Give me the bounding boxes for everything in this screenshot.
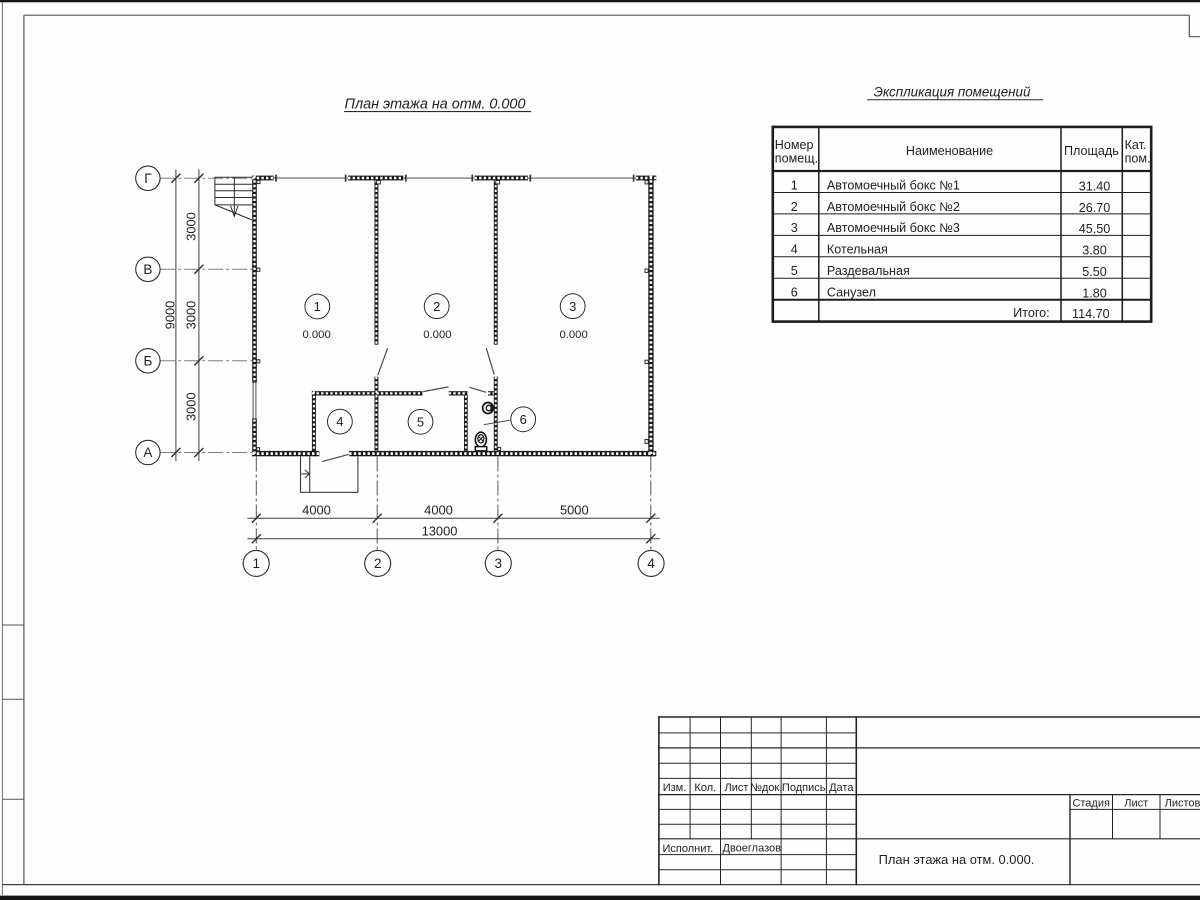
svg-text:Автомоечный бокс №3: Автомоечный бокс №3 <box>827 221 960 235</box>
svg-text:Г: Г <box>144 171 152 186</box>
svg-text:Площадь: Площадь <box>1064 144 1119 158</box>
svg-text:Стадия: Стадия <box>1072 797 1110 809</box>
svg-text:5.50: 5.50 <box>1082 265 1107 279</box>
svg-text:5000: 5000 <box>560 503 589 518</box>
svg-text:4: 4 <box>336 414 343 429</box>
svg-text:помещ.: помещ. <box>775 152 818 166</box>
svg-text:114.70: 114.70 <box>1072 307 1110 321</box>
svg-text:4: 4 <box>791 243 798 257</box>
svg-text:Автомоечный бокс №1: Автомоечный бокс №1 <box>827 178 960 192</box>
svg-text:5: 5 <box>417 414 424 429</box>
svg-text:2: 2 <box>791 200 798 214</box>
svg-text:3000: 3000 <box>183 301 198 330</box>
svg-text:Кол.: Кол. <box>694 782 716 794</box>
svg-text:Раздевальная: Раздевальная <box>827 264 910 278</box>
svg-text:3000: 3000 <box>183 212 198 241</box>
svg-text:0.000: 0.000 <box>559 329 587 341</box>
svg-text:Номер: Номер <box>775 138 814 152</box>
svg-text:Итого:: Итого: <box>1013 306 1050 320</box>
svg-text:9000: 9000 <box>163 301 178 330</box>
svg-text:Лист: Лист <box>725 782 749 794</box>
svg-text:26.70: 26.70 <box>1079 201 1111 215</box>
svg-text:Подпись: Подпись <box>782 782 826 794</box>
svg-text:5: 5 <box>791 264 798 278</box>
svg-text:План этажа на отм. 0.000: План этажа на отм. 0.000 <box>345 97 526 113</box>
svg-text:3.80: 3.80 <box>1082 244 1107 258</box>
svg-text:45.50: 45.50 <box>1079 222 1111 236</box>
svg-text:3000: 3000 <box>183 392 198 421</box>
svg-text:0.000: 0.000 <box>423 329 451 341</box>
svg-text:В: В <box>143 262 152 277</box>
svg-text:2: 2 <box>433 299 440 314</box>
svg-text:31.40: 31.40 <box>1079 179 1111 193</box>
svg-text:Исполнит.: Исполнит. <box>663 843 714 855</box>
svg-text:4000: 4000 <box>424 503 453 518</box>
svg-text:1: 1 <box>314 299 321 314</box>
svg-text:3: 3 <box>569 299 576 314</box>
svg-text:3: 3 <box>791 221 798 235</box>
svg-text:Изм.: Изм. <box>663 782 687 794</box>
svg-text:Дата: Дата <box>829 782 854 794</box>
svg-text:План этажа на отм. 0.000.: План этажа на отм. 0.000. <box>879 852 1035 867</box>
svg-text:пом.: пом. <box>1125 152 1151 166</box>
svg-text:13000: 13000 <box>422 523 458 538</box>
svg-text:Санузел: Санузел <box>827 286 876 300</box>
svg-text:Кат.: Кат. <box>1125 138 1147 152</box>
svg-text:4: 4 <box>647 556 655 571</box>
svg-text:Экспликация помещений: Экспликация помещений <box>874 85 1031 100</box>
svg-text:Лист: Лист <box>1124 797 1148 809</box>
svg-text:0.000: 0.000 <box>302 329 330 341</box>
svg-text:Б: Б <box>143 354 152 369</box>
svg-text:А: А <box>143 445 152 460</box>
svg-text:6: 6 <box>520 412 527 427</box>
svg-text:4000: 4000 <box>302 503 331 518</box>
svg-text:Двоеглазов: Двоеглазов <box>723 842 782 854</box>
svg-text:Листов: Листов <box>1165 797 1200 809</box>
svg-text:1.80: 1.80 <box>1082 287 1107 301</box>
svg-text:1: 1 <box>252 556 260 571</box>
svg-text:Автомоечный бокс №2: Автомоечный бокс №2 <box>827 200 960 214</box>
svg-text:2: 2 <box>374 556 382 571</box>
svg-text:№док.: №док. <box>750 782 782 794</box>
svg-text:3: 3 <box>495 556 503 571</box>
svg-text:Котельная: Котельная <box>827 243 888 257</box>
svg-text:6: 6 <box>791 286 798 300</box>
svg-text:1: 1 <box>791 178 798 192</box>
svg-text:Наименование: Наименование <box>906 144 993 158</box>
